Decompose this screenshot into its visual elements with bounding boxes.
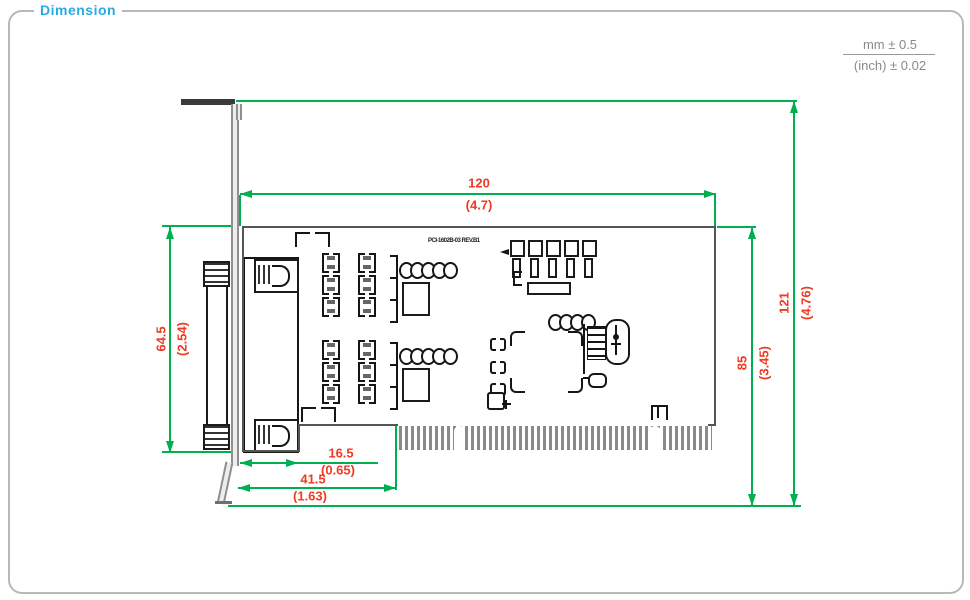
coil-array-top	[399, 262, 458, 279]
dim-pcb-height-inch: (3.45)	[757, 346, 772, 380]
tolerance-inch: (inch) ± 0.02	[841, 58, 939, 73]
jumper-block	[651, 405, 668, 420]
board-silkscreen-label: PCI-1602B-03 REV.B1	[428, 238, 480, 244]
dim-width-line	[240, 193, 716, 195]
pcb-top-edge	[242, 226, 716, 228]
ic-chip-bottom	[402, 368, 430, 402]
edge-connector-fingers	[399, 426, 712, 450]
tolerance-mm: mm ± 0.5	[845, 37, 935, 52]
dsub-top-cap	[203, 261, 230, 287]
dim-width-arrow-left	[240, 190, 252, 198]
key-notch-right	[649, 426, 661, 450]
bracket-foot	[215, 501, 232, 504]
dim-connector-offset-inch: (0.65)	[321, 463, 355, 478]
dsub-body	[206, 285, 228, 427]
dim-width-mm: 120	[468, 176, 490, 191]
page-title: Dimension	[34, 2, 122, 18]
dim-width-inch: (4.7)	[466, 198, 493, 213]
dim-overall-height-mm: 121	[777, 292, 792, 314]
ic-chip-top	[402, 282, 430, 316]
crystal-oscillator	[605, 319, 630, 365]
dim-bracket-height-line	[169, 227, 171, 453]
dsub-bottom-cap	[203, 424, 230, 450]
dim-pcb-height-line	[751, 227, 753, 506]
dimension-diagram: Dimension mm ± 0.5 (inch) ± 0.02 120 (4.…	[0, 0, 970, 600]
dim-bracket-height-inch: (2.54)	[175, 322, 190, 356]
dim-board-offset-mm: 41.5	[300, 472, 325, 487]
dim-connector-offset-line	[240, 462, 378, 464]
dim-connector-offset-mm: 16.5	[328, 446, 353, 461]
polarity-arrow	[500, 249, 509, 255]
dim-board-offset-inch: (1.63)	[293, 489, 327, 504]
tolerance-divider	[843, 54, 935, 55]
key-notch-left	[454, 426, 465, 450]
pcb-left-edge	[242, 226, 244, 452]
dim-overall-height-line	[793, 101, 795, 506]
dim-bracket-height-mm: 64.5	[154, 326, 169, 351]
bracket-top-tab	[181, 99, 235, 105]
capacitor-square	[487, 392, 505, 410]
coil-array-bottom	[399, 348, 458, 365]
bracket-bar	[231, 104, 239, 466]
dim-overall-height-inch: (4.76)	[799, 286, 814, 320]
dim-pcb-height-mm: 85	[735, 356, 750, 370]
pcb-right-edge	[714, 226, 716, 426]
inductor-coil	[587, 326, 606, 360]
resistor-array	[527, 282, 571, 295]
